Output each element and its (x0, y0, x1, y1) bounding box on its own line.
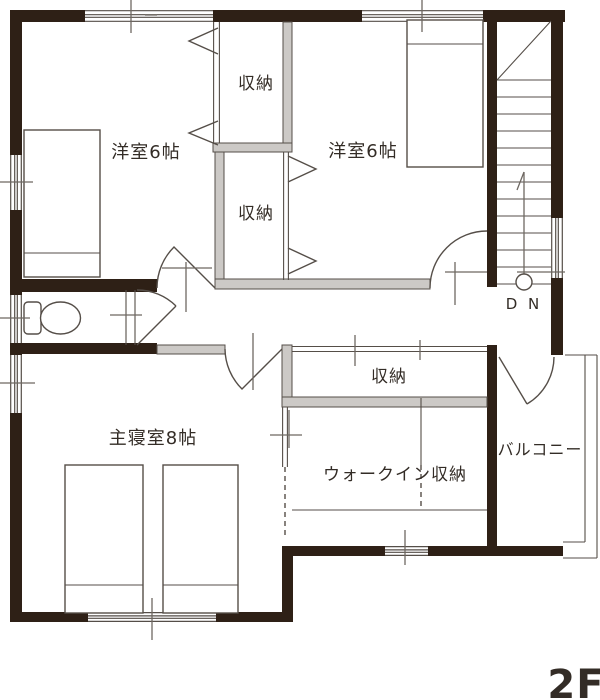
wall-right (551, 10, 563, 355)
room2-label: 洋室6帖 (328, 141, 397, 162)
room1-label: 洋室6帖 (111, 142, 180, 163)
closet-upper-label: 収納 (238, 74, 274, 94)
door-room2 (430, 231, 487, 288)
door-toilet (137, 290, 176, 345)
bed-master-1 (65, 465, 143, 613)
bed-room2 (407, 20, 483, 167)
window-right-stairs (551, 218, 563, 278)
toilet-bowl (41, 302, 81, 334)
staircase (497, 21, 551, 290)
stairs-arrow-head (517, 172, 524, 190)
window-left-bedroom (10, 355, 22, 413)
wall-closet-lower-left (215, 152, 224, 285)
floor-number-label: 2F (547, 662, 600, 700)
floor-plan: 洋室6帖 洋室6帖 収納 収納 収納 ウォークイン収納 主寝室8帖 バルコニー … (0, 0, 600, 700)
door-balcony (499, 357, 554, 404)
wall-storage-bottom (282, 397, 487, 407)
closet-lower-door-mark-1 (288, 156, 316, 182)
wall-closet-divider (213, 143, 292, 152)
furniture (24, 20, 483, 613)
wall-bedroom-wic (282, 546, 293, 622)
wall-wic-balcony (487, 345, 497, 556)
closet-lower-door-mark-2 (288, 248, 316, 274)
wall-hall-top (215, 279, 430, 289)
floor-plan-drawing: 洋室6帖 洋室6帖 収納 収納 収納 ウォークイン収納 主寝室8帖 バルコニー … (0, 0, 600, 700)
wall-hall-bottom (157, 345, 225, 354)
stairs-start-circle (516, 274, 532, 290)
wall-closet-upper-right (283, 22, 292, 143)
toilet-fixture (24, 302, 81, 334)
window-bottom-wic (385, 546, 428, 556)
closet-lower-label: 収納 (238, 204, 274, 224)
bed-room1 (24, 130, 100, 277)
stairs-break-line (497, 21, 551, 80)
balcony-label: バルコニー (498, 440, 583, 459)
stairs-dn-label: D N (506, 295, 543, 313)
window-left-toilet (10, 295, 22, 343)
window-top-room1 (85, 10, 213, 22)
wall-stairs-left (487, 13, 497, 287)
walk-in-closet-label: ウォークイン収納 (323, 465, 467, 485)
hall-storage-label: 収納 (371, 367, 407, 387)
master-bedroom-label: 主寝室8帖 (109, 428, 197, 449)
bed-master-2 (163, 465, 238, 613)
